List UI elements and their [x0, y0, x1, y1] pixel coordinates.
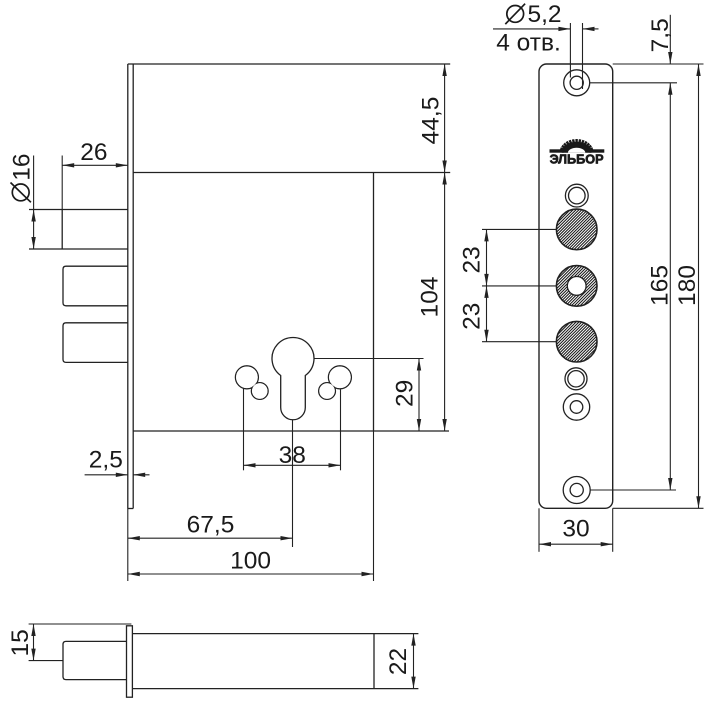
svg-text:22: 22 — [385, 648, 412, 675]
svg-text:30: 30 — [562, 516, 589, 543]
svg-text:44,5: 44,5 — [417, 97, 444, 145]
svg-text:15: 15 — [7, 629, 34, 656]
svg-text:2,5: 2,5 — [89, 447, 123, 474]
svg-text:165: 165 — [646, 265, 673, 306]
svg-text:100: 100 — [230, 547, 271, 574]
svg-text:16: 16 — [9, 153, 36, 180]
svg-text:26: 26 — [80, 139, 107, 166]
svg-text:4 отв.: 4 отв. — [496, 30, 561, 57]
svg-text:7,5: 7,5 — [647, 18, 674, 52]
svg-text:23: 23 — [459, 303, 486, 330]
svg-text:5,2: 5,2 — [528, 1, 562, 28]
svg-text:67,5: 67,5 — [187, 512, 235, 539]
svg-text:180: 180 — [674, 265, 701, 306]
svg-text:29: 29 — [392, 380, 419, 407]
svg-text:23: 23 — [459, 246, 486, 273]
svg-text:ЭЛЬБОР: ЭЛЬБОР — [550, 151, 604, 166]
svg-text:104: 104 — [416, 277, 443, 318]
svg-text:38: 38 — [279, 442, 306, 469]
